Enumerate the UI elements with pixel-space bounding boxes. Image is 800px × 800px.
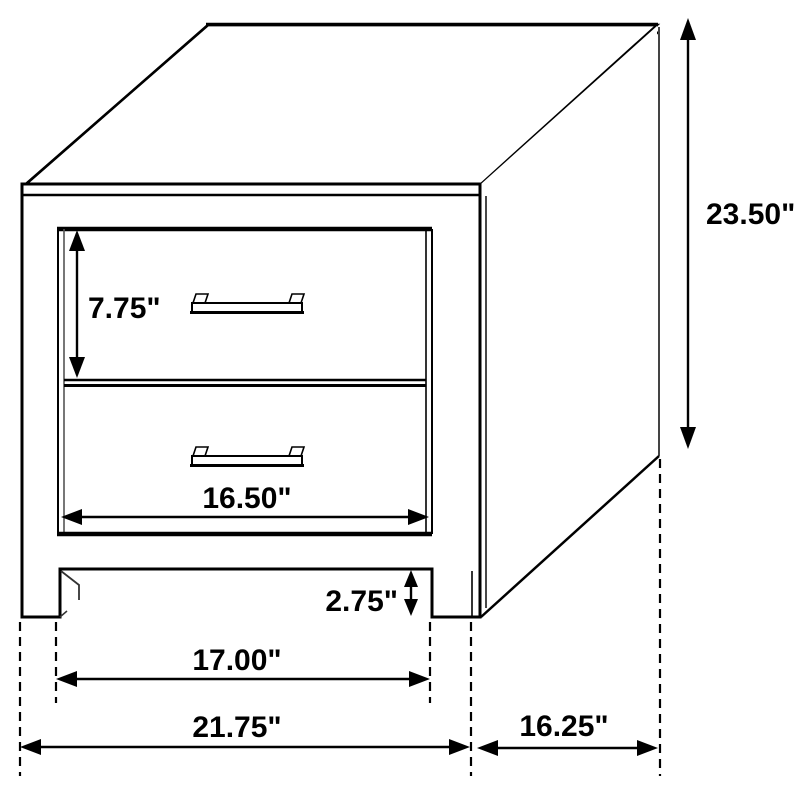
arrowhead-up xyxy=(404,570,418,587)
dimension-overall-depth: 16.25" xyxy=(477,710,658,756)
dimension-label: 2.75" xyxy=(325,585,398,618)
handle-left-standoff xyxy=(193,294,208,303)
arrowhead-right xyxy=(449,739,470,755)
dimension-label: 7.75" xyxy=(88,292,161,325)
dimension-overall-height: 23.50" xyxy=(680,18,795,449)
dimension-label: 17.00" xyxy=(192,644,281,677)
nightstand-dimension-diagram: 7.75" 16.50" 2.75" 17.00" 21.75" 16.25" xyxy=(0,0,800,800)
handle-bar xyxy=(192,456,302,465)
dimension-overall-width: 21.75" xyxy=(20,711,470,755)
dimension-inner-width: 17.00" xyxy=(56,644,430,687)
handle-bar xyxy=(192,303,302,312)
arrowhead-down xyxy=(404,599,418,616)
dimension-label: 23.50" xyxy=(706,198,795,231)
arrowhead-left xyxy=(56,671,77,687)
handle-right-standoff xyxy=(289,447,304,456)
arrowhead-right xyxy=(637,740,658,756)
diagram-stage: 7.75" 16.50" 2.75" 17.00" 21.75" 16.25" xyxy=(0,0,800,800)
arrowhead-up xyxy=(680,18,696,40)
left-leg-recess-shadow xyxy=(61,571,79,600)
handle-right-standoff xyxy=(289,294,304,303)
dimension-label: 16.50" xyxy=(202,482,291,515)
dimension-leg-clearance: 2.75" xyxy=(325,570,418,618)
dimension-label: 16.25" xyxy=(519,710,608,743)
arrowhead-left xyxy=(20,739,41,755)
handle-left-standoff xyxy=(193,447,208,456)
front-face-outline xyxy=(22,184,480,617)
arrowhead-left xyxy=(477,740,498,756)
arrowhead-down xyxy=(680,427,696,449)
dimension-label: 21.75" xyxy=(192,711,281,744)
arrowhead-right xyxy=(409,671,430,687)
